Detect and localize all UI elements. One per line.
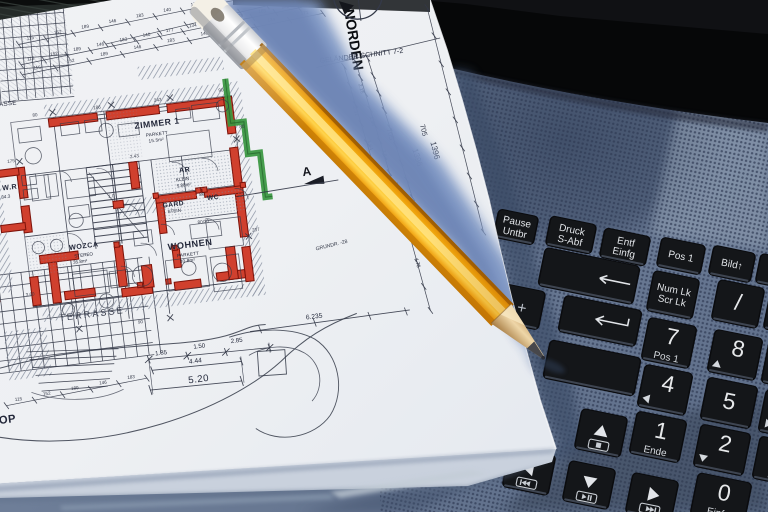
svg-text:1.50: 1.50: [193, 342, 206, 350]
svg-text:115: 115: [33, 65, 41, 71]
svg-text:189: 189: [81, 24, 90, 30]
svg-text:OP: OP: [0, 413, 17, 427]
svg-text:A: A: [302, 164, 313, 179]
svg-text:1.0: 1.0: [108, 193, 115, 199]
svg-text:152: 152: [50, 51, 59, 57]
svg-text:186: 186: [93, 104, 102, 110]
svg-text:115: 115: [26, 35, 34, 41]
svg-text:140: 140: [163, 7, 172, 13]
svg-text:183: 183: [127, 374, 136, 380]
svg-text:146: 146: [96, 41, 105, 47]
svg-text:146: 146: [108, 18, 117, 24]
svg-text:146: 146: [133, 44, 142, 50]
svg-text:152: 152: [54, 29, 63, 35]
svg-text:189: 189: [100, 51, 109, 57]
svg-text:146: 146: [99, 380, 108, 386]
svg-text:2.85: 2.85: [230, 337, 243, 345]
svg-text:189: 189: [73, 46, 82, 52]
svg-text:1.85: 1.85: [155, 349, 168, 357]
svg-text:237: 237: [252, 227, 261, 233]
svg-text:183: 183: [167, 37, 176, 43]
svg-text:AR: AR: [178, 165, 190, 174]
svg-text:WC: WC: [207, 194, 220, 202]
svg-text:175: 175: [7, 158, 16, 164]
svg-text:243: 243: [154, 97, 163, 103]
svg-text:115: 115: [15, 396, 23, 402]
svg-text:115: 115: [27, 56, 35, 62]
svg-text:152: 152: [67, 58, 76, 64]
svg-text:183: 183: [136, 12, 145, 18]
